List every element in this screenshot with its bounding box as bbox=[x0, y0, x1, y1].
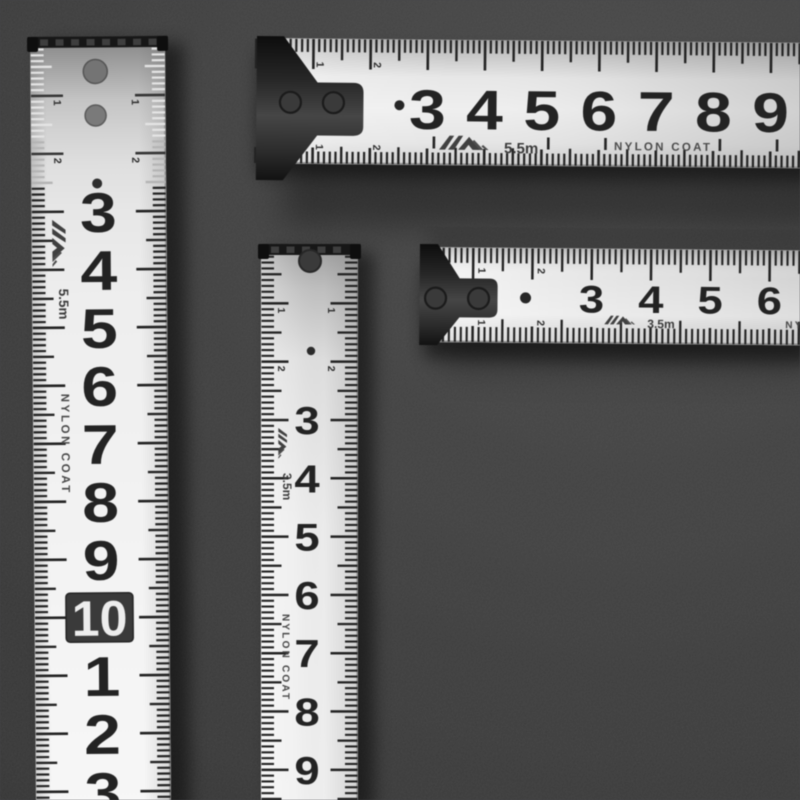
svg-text:3.5m: 3.5m bbox=[280, 473, 294, 500]
svg-text:8: 8 bbox=[82, 471, 119, 533]
svg-text:9: 9 bbox=[752, 81, 789, 143]
svg-text:1: 1 bbox=[51, 100, 63, 106]
svg-text:6: 6 bbox=[294, 574, 319, 617]
svg-text:1: 1 bbox=[275, 307, 287, 313]
svg-text:4: 4 bbox=[466, 79, 503, 141]
svg-text:5.5m: 5.5m bbox=[504, 140, 538, 157]
svg-text:3.5m: 3.5m bbox=[647, 317, 674, 331]
svg-text:8: 8 bbox=[294, 691, 319, 734]
svg-text:6: 6 bbox=[580, 80, 617, 142]
svg-text:NYLON COAT: NYLON COAT bbox=[58, 394, 71, 495]
svg-text:NYLON COAT: NYLON COAT bbox=[280, 614, 291, 701]
svg-text:8: 8 bbox=[695, 81, 732, 143]
svg-text:1: 1 bbox=[129, 99, 141, 105]
svg-text:2: 2 bbox=[275, 366, 287, 372]
svg-text:3: 3 bbox=[84, 761, 121, 800]
svg-text:2: 2 bbox=[371, 62, 383, 68]
svg-text:2: 2 bbox=[370, 145, 382, 151]
svg-text:NYLON: NYLON bbox=[785, 320, 800, 331]
svg-text:5: 5 bbox=[523, 79, 560, 141]
svg-text:1: 1 bbox=[83, 645, 120, 707]
svg-text:2: 2 bbox=[84, 703, 121, 765]
svg-text:1: 1 bbox=[475, 268, 487, 274]
svg-text:5: 5 bbox=[81, 297, 118, 359]
svg-text:6: 6 bbox=[757, 279, 783, 322]
svg-text:1: 1 bbox=[314, 62, 326, 68]
svg-text:7: 7 bbox=[82, 413, 119, 475]
svg-text:4: 4 bbox=[80, 239, 117, 301]
svg-text:4: 4 bbox=[638, 278, 664, 321]
svg-text:9: 9 bbox=[82, 529, 119, 591]
svg-text:7: 7 bbox=[294, 632, 319, 675]
svg-text:5: 5 bbox=[294, 516, 319, 559]
svg-text:5: 5 bbox=[697, 279, 723, 322]
svg-text:2: 2 bbox=[51, 158, 63, 164]
svg-text:3: 3 bbox=[409, 78, 446, 140]
svg-text:3: 3 bbox=[80, 181, 117, 243]
svg-text:2: 2 bbox=[325, 366, 337, 372]
svg-text:2: 2 bbox=[535, 268, 547, 274]
svg-text:4: 4 bbox=[294, 458, 320, 501]
svg-text:9: 9 bbox=[294, 749, 319, 792]
svg-text:1: 1 bbox=[325, 307, 337, 313]
svg-text:10: 10 bbox=[72, 590, 128, 646]
svg-text:3: 3 bbox=[579, 278, 605, 321]
svg-text:5.5m: 5.5m bbox=[56, 289, 71, 320]
svg-text:1: 1 bbox=[313, 144, 325, 150]
svg-text:NYLON COAT: NYLON COAT bbox=[614, 141, 712, 154]
svg-text:3: 3 bbox=[294, 399, 319, 442]
svg-text:1: 1 bbox=[475, 320, 487, 326]
svg-text:2: 2 bbox=[129, 157, 141, 163]
svg-text:6: 6 bbox=[81, 355, 118, 417]
svg-text:7: 7 bbox=[638, 80, 675, 142]
svg-text:2: 2 bbox=[534, 320, 546, 326]
